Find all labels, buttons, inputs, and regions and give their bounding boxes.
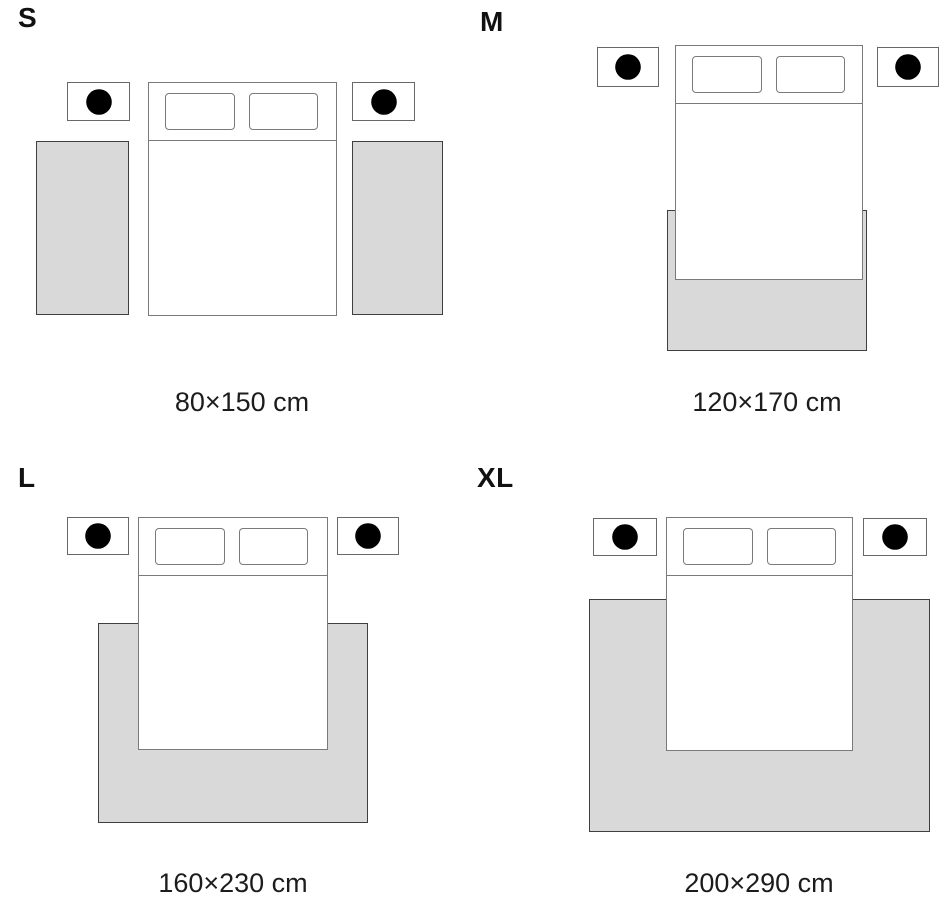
bed-headboard <box>149 83 336 141</box>
nightstand-left <box>67 82 130 121</box>
rug-size-guide-diagram: S 80×150 cm M 120×170 cm L <box>0 0 950 900</box>
plant-icon <box>82 520 114 552</box>
pillow <box>776 56 845 93</box>
size-label-s: S <box>18 4 37 32</box>
nightstand-right <box>337 517 399 555</box>
size-label-xl: XL <box>477 464 514 492</box>
plant-icon <box>83 86 115 118</box>
bed <box>675 45 863 280</box>
pillow <box>155 528 225 565</box>
size-dimensions-s: 80×150 cm <box>92 388 392 418</box>
bed <box>148 82 337 316</box>
bed <box>666 517 853 751</box>
plant-icon <box>609 521 641 553</box>
nightstand-right <box>863 518 927 556</box>
plant-icon <box>892 51 924 83</box>
pillow <box>239 528 308 565</box>
size-label-m: M <box>480 8 504 36</box>
nightstand-left <box>597 47 659 87</box>
size-dimensions-l: 160×230 cm <box>83 869 383 899</box>
size-dimensions-xl: 200×290 cm <box>609 869 909 899</box>
plant-icon <box>352 520 384 552</box>
rug-left-runner <box>36 141 129 315</box>
nightstand-right <box>877 47 939 87</box>
bed-headboard <box>139 518 327 576</box>
size-label-l: L <box>18 464 36 492</box>
pillow <box>692 56 762 93</box>
plant-icon <box>368 86 400 118</box>
nightstand-left <box>593 518 657 556</box>
nightstand-left <box>67 517 129 555</box>
plant-icon <box>612 51 644 83</box>
plant-icon <box>879 521 911 553</box>
nightstand-right <box>352 82 415 121</box>
bed <box>138 517 328 750</box>
bed-headboard <box>676 46 862 104</box>
pillow <box>165 93 235 130</box>
rug-right-runner <box>352 141 443 315</box>
pillow <box>249 93 318 130</box>
bed-headboard <box>667 518 852 576</box>
pillow <box>767 528 836 565</box>
size-dimensions-m: 120×170 cm <box>617 388 917 418</box>
pillow <box>683 528 753 565</box>
